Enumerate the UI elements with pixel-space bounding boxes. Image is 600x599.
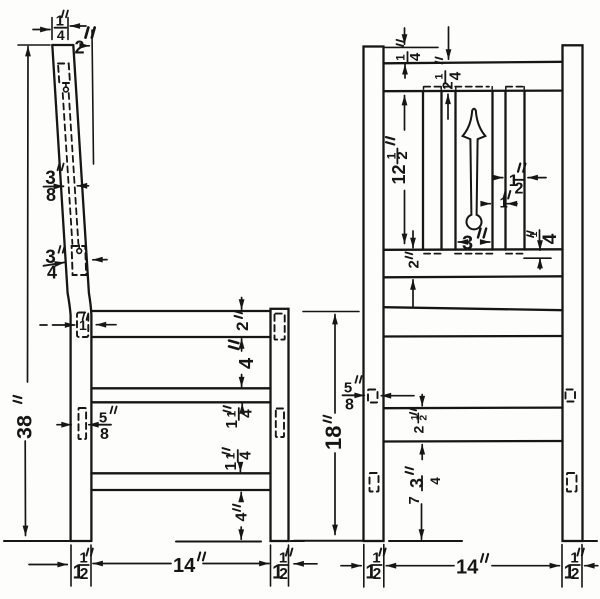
svg-text:38: 38 xyxy=(13,415,37,439)
svg-text:2: 2 xyxy=(233,322,252,331)
svg-text:18: 18 xyxy=(321,426,346,450)
svg-text:1: 1 xyxy=(396,54,408,61)
svg-text:12: 12 xyxy=(389,164,409,184)
svg-text:1: 1 xyxy=(223,462,240,471)
svg-text:7: 7 xyxy=(406,496,423,504)
svg-text:2: 2 xyxy=(571,566,580,583)
svg-text:4: 4 xyxy=(428,477,443,485)
svg-text:2: 2 xyxy=(394,151,411,159)
svg-text:2: 2 xyxy=(410,426,426,434)
svg-text:3: 3 xyxy=(462,233,473,255)
svg-text:8: 8 xyxy=(345,397,354,414)
svg-text:8: 8 xyxy=(46,185,56,205)
svg-text:4: 4 xyxy=(47,263,57,283)
svg-text:4: 4 xyxy=(234,513,251,522)
svg-text:14: 14 xyxy=(456,557,479,579)
svg-text:1: 1 xyxy=(224,420,241,429)
svg-text:4: 4 xyxy=(57,27,65,43)
svg-text:4: 4 xyxy=(236,357,258,369)
svg-text:2: 2 xyxy=(373,566,382,583)
svg-text:5: 5 xyxy=(344,380,352,397)
svg-text:4: 4 xyxy=(448,71,465,80)
svg-text:2: 2 xyxy=(406,260,423,268)
svg-text:2: 2 xyxy=(80,566,89,583)
svg-text:4: 4 xyxy=(540,233,561,244)
svg-text:8: 8 xyxy=(100,426,109,443)
svg-text:14: 14 xyxy=(173,555,196,577)
svg-text:3: 3 xyxy=(407,478,427,488)
svg-text:2: 2 xyxy=(279,566,288,583)
svg-text:2: 2 xyxy=(75,38,85,58)
svg-text:2: 2 xyxy=(417,415,429,421)
svg-text:4: 4 xyxy=(238,451,255,460)
svg-text:2: 2 xyxy=(441,81,457,89)
svg-text:4: 4 xyxy=(239,409,256,418)
svg-text:1: 1 xyxy=(434,73,446,79)
svg-text:2: 2 xyxy=(515,181,524,198)
svg-text:4: 4 xyxy=(407,52,424,61)
